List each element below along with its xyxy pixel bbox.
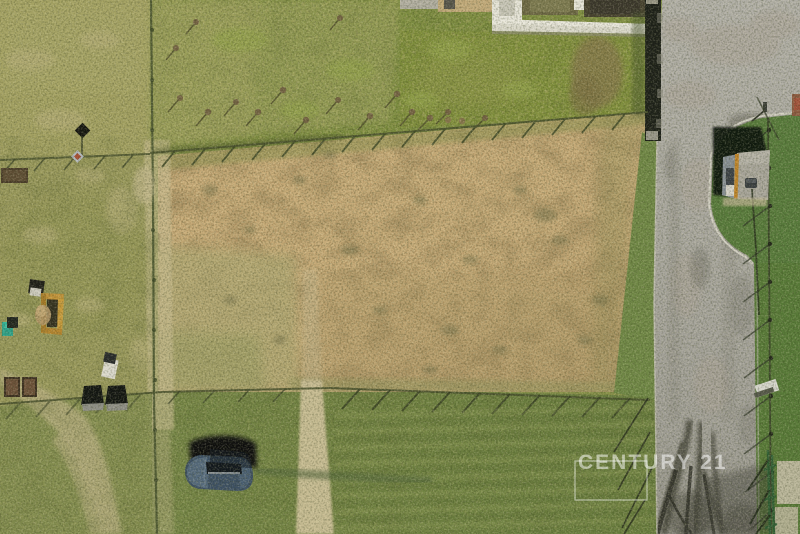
svg-text:CENTURY 21: CENTURY 21: [578, 451, 728, 474]
